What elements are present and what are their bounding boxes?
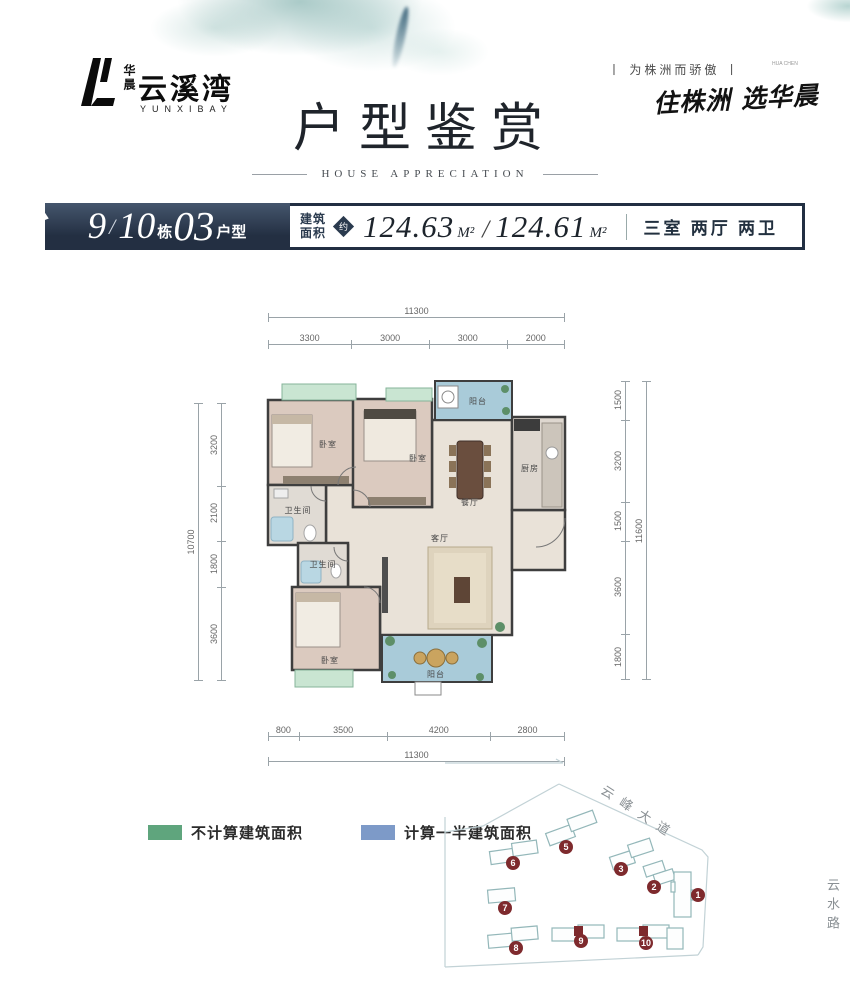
spec-divider [626,214,627,240]
plant-icon [502,407,510,415]
page-title: 户型鉴赏 [0,86,850,161]
area-value-2: 124.61 [495,209,586,245]
dim-value: 10700 [184,403,200,681]
bay-window-middle [386,388,432,401]
building-badge-3: 3 [614,862,628,876]
dim-text: 3600 [613,577,623,597]
unit-area-block: 建筑 面积 约 124.63 M² / 124.61 M² 三室 两厅 两卫 [290,203,805,250]
dim-text: 3200 [613,451,623,471]
dim-top-segments: 3300 3000 3000 2000 [268,330,565,345]
road-label-right: 云水路 [823,878,842,935]
legend-swatch-blue [361,825,395,840]
room-label-bedroom-mid: 卧室 [409,453,427,463]
dim-value: 11600 [632,381,648,680]
layout-spec: 三室 两厅 两卫 [643,214,778,239]
ac-platform [415,682,441,695]
dim-value: 1500 [611,381,627,420]
watercolor-ink-streak [390,6,412,69]
dim-value: 1500 [611,502,627,541]
dim-value: 3300 [268,330,351,345]
room-entry [512,510,565,570]
dim-right-total: 11600 [632,381,648,680]
dim-value: 3600 [611,541,627,634]
dim-left-segments: 3200 2100 1800 3600 [207,403,223,681]
room-label-living: 客厅 [431,533,449,543]
legend-swatch-green [148,825,182,840]
washer-icon [438,386,458,408]
room-label-bath-2: 卫生间 [310,559,337,569]
unit-number: 03 [173,206,214,247]
dim-text: 11600 [634,518,644,542]
dim-value: 2100 [207,486,223,541]
dim-value: 800 [268,722,299,737]
dim-text: 1800 [613,647,623,667]
building-badge-7: 7 [498,901,512,915]
room-label-dining: 餐厅 [461,498,479,507]
dim-text: 1500 [613,390,623,410]
dim-text: 10700 [186,529,196,554]
building-badge-1: 1 [691,888,705,902]
building-number-1: 9 [88,208,107,245]
dim-left-total: 10700 [184,403,200,681]
site-map-drawing [440,752,850,993]
unit-number-block: 9 / 10 栋 03 户型 [45,203,290,250]
building-badge-2: 2 [647,880,661,894]
dim-right-segments: 1500 3200 1500 3600 1800 [611,381,627,680]
bay-window-bottom [295,670,353,687]
dim-value: 4200 [387,722,490,737]
site-map: 云峰大道 云水路 5 6 3 2 1 7 8 9 10 [440,752,850,993]
room-label-balcony-bottom: 阳台 [427,669,445,679]
unit-header-bar: 9 / 10 栋 03 户型 建筑 面积 约 124.63 M² / 124.6… [45,203,805,250]
unit-suffix: 户型 [216,221,246,242]
building-badge-5: 5 [559,840,573,854]
area-value-1: 124.63 [363,209,454,245]
building-number-divider: / [109,214,115,240]
dim-text: 2100 [209,503,219,523]
area-unit-1: M² [457,225,474,242]
dim-value: 3000 [429,330,507,345]
dim-value: 2000 [507,330,565,345]
floor-plan: 卧室 卧室 卫生间 餐厅 厨房 客厅 卫生间 卧室 阳台 阳台 [268,381,565,680]
dim-value: 2800 [490,722,565,737]
room-label-kitchen: 厨房 [521,463,539,473]
brand-slogan: 丨 为株洲而骄傲 丨 [608,61,741,78]
bed-icon [296,593,340,647]
building-badge-10: 10 [639,936,653,950]
dim-text: 3600 [209,624,219,644]
dim-top-total: 11300 [268,303,565,318]
building-badge-8: 8 [509,941,523,955]
dim-text: 3200 [209,435,219,455]
room-label-bedroom-tl: 卧室 [319,439,337,449]
legend-label-green: 不计算建筑面积 [191,822,303,843]
dim-value: 1800 [207,541,223,588]
area-unit-2: M² [589,225,606,242]
building-number-2: 10 [118,208,155,245]
building-suffix: 栋 [157,221,172,242]
bay-window-top-left [282,384,356,400]
room-label-balcony-top: 阳台 [469,396,487,406]
poster-page: 华晨 云溪湾 YUNXIBAY 丨 为株洲而骄傲 丨 HUA CHEN 住株洲 … [0,0,850,993]
area-values: 124.63 M² / 124.61 M² [363,209,608,245]
page-subtitle: HOUSE APPRECIATION [0,168,850,180]
area-label: 建筑 面积 [300,213,326,241]
building-5-outline [544,810,599,846]
room-label-bedroom-b: 卧室 [321,655,339,665]
building-badge-9: 9 [574,934,588,948]
area-values-slash: / [482,216,489,244]
subtitle-rule-left [252,174,307,175]
legend-item-green: 不计算建筑面积 [148,822,303,843]
highlighted-unit-building-10 [639,926,648,936]
dim-text: 1800 [209,554,219,574]
approx-diamond-icon: 约 [333,216,354,237]
subtitle-rule-right [543,174,598,175]
dim-value: 3200 [611,420,627,502]
dim-text: 1500 [613,511,623,531]
dim-value: 3500 [299,722,388,737]
dim-value: 1800 [611,634,627,680]
room-label-bath-1: 卫生间 [285,505,312,515]
area-label-line2: 面积 [300,227,326,241]
dim-value: 3000 [351,330,429,345]
page-subtitle-text: HOUSE APPRECIATION [321,168,528,180]
floor-plan-drawing: 卧室 卧室 卫生间 餐厅 厨房 客厅 卫生间 卧室 阳台 阳台 [268,381,565,680]
dim-value: 3200 [207,403,223,486]
torn-edge-decoration [37,208,51,226]
approx-char: 约 [339,220,348,233]
dim-value: 11300 [268,303,565,318]
area-label-line1: 建筑 [300,213,326,227]
building-badge-6: 6 [506,856,520,870]
dim-value: 3600 [207,587,223,681]
dim-bottom-segments: 800 3500 4200 2800 [268,722,565,737]
brand-slogan-small: HUA CHEN [772,61,798,67]
plant-icon [501,385,509,393]
